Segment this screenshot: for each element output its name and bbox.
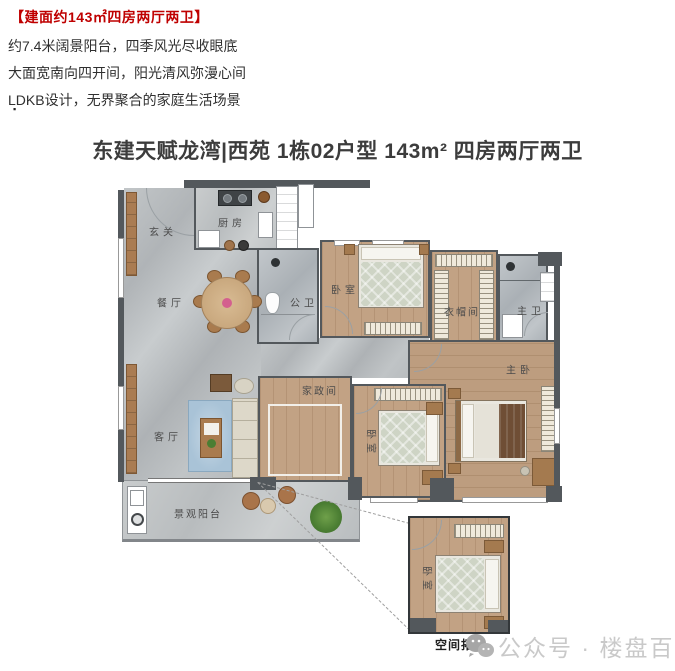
utility-window xyxy=(298,184,314,228)
room-label-bedroom3: 卧室 xyxy=(365,429,380,457)
stove xyxy=(218,190,252,206)
blanket xyxy=(499,404,525,458)
burner xyxy=(223,194,232,203)
bath-faucet xyxy=(506,262,515,271)
inset-expanded-bedroom: 卧室 xyxy=(408,516,510,634)
nightstand xyxy=(448,463,461,474)
room-label-master-bedroom: 主卧 xyxy=(506,362,534,377)
pillows xyxy=(426,414,438,462)
bar-stool xyxy=(224,240,235,251)
cooking-pot xyxy=(258,191,270,203)
washing-machine xyxy=(131,513,144,526)
marketing-line-3: LDKB设计，无界聚合的家庭生活场景 xyxy=(8,90,241,110)
bed xyxy=(358,244,424,308)
room-label-master-bath: 主卫 xyxy=(517,303,545,318)
headboard xyxy=(456,401,461,461)
bullet-mark: ▪ xyxy=(13,104,16,114)
blanket xyxy=(438,558,484,610)
wall-pillar xyxy=(546,486,562,502)
coffee-table xyxy=(200,418,222,458)
wall-pillar xyxy=(538,252,562,266)
desk xyxy=(426,402,443,415)
wardrobe xyxy=(435,254,493,267)
bedroom2-door-arc xyxy=(325,306,353,334)
bed xyxy=(378,410,440,466)
pillows xyxy=(361,247,421,260)
left-window xyxy=(118,386,124,430)
wardrobe xyxy=(364,322,422,335)
marketing-line-2: 大面宽南向四开间，阳光清风弥漫心间 xyxy=(8,63,246,83)
toilet xyxy=(265,292,280,314)
desk xyxy=(484,540,504,553)
tall-cabinet xyxy=(276,186,298,250)
flower-centerpiece xyxy=(222,298,232,308)
right-window xyxy=(554,408,560,444)
exterior-wall-left xyxy=(118,190,124,482)
wall-pillar xyxy=(430,478,454,502)
sheet xyxy=(475,404,499,458)
nightstand xyxy=(448,388,461,399)
shoe-cabinet xyxy=(126,192,137,276)
room-label-living: 客厅 xyxy=(154,429,182,444)
shower-tray xyxy=(502,314,523,338)
dining-table xyxy=(201,277,253,329)
tray xyxy=(204,423,219,435)
room-label-utility: 家政间 xyxy=(302,383,338,398)
room-label-inset-bedroom: 卧室 xyxy=(421,566,436,594)
dresser xyxy=(532,458,556,486)
room-label-bedroom2: 卧室 xyxy=(331,282,359,297)
headline-area-spec: 【建面约143㎡四房两厅两卫】 xyxy=(10,7,209,27)
page-title: 东建天赋龙湾|西苑 1栋02户型 143m² 四房两厅两卫 xyxy=(0,135,675,165)
armchair xyxy=(234,378,254,394)
nightstand xyxy=(419,244,429,255)
room-label-balcony: 景观阳台 xyxy=(174,506,222,521)
watermark-text: 公众号 · 楼盘百科 xyxy=(498,629,675,663)
wall-pillar xyxy=(348,477,362,500)
master-bedroom-door-arc xyxy=(414,344,442,372)
marketing-line-1: 约7.4米阔景阳台，四季风光尽收眼底 xyxy=(8,36,237,56)
nightstand xyxy=(344,244,355,255)
balcony-sink xyxy=(130,490,144,506)
fridge xyxy=(198,230,220,248)
wardrobe xyxy=(454,524,504,538)
room-label-entry: 玄关 xyxy=(149,224,177,239)
bottom-window xyxy=(462,497,548,503)
inset-door-arc xyxy=(412,520,442,550)
exterior-wall-right xyxy=(554,254,560,502)
room-label-closet: 衣帽间 xyxy=(444,304,480,319)
burner xyxy=(238,194,247,203)
master-bed xyxy=(455,400,527,462)
walkin-closet-room xyxy=(430,250,498,344)
balcony-table xyxy=(260,498,276,514)
bar-stool xyxy=(238,240,249,251)
floorplan-page: 【建面约143㎡四房两厅两卫】 约7.4米阔景阳台，四季风光尽收眼底 大面宽南向… xyxy=(0,0,675,671)
wardrobe xyxy=(479,270,494,340)
room-label-dining: 餐厅 xyxy=(157,295,185,310)
blanket xyxy=(381,413,425,463)
kitchen-sink xyxy=(258,212,273,238)
bed xyxy=(435,555,501,613)
wechat-icon xyxy=(464,631,496,661)
wardrobe xyxy=(374,388,442,401)
balcony-sliding-door xyxy=(148,478,254,483)
laundry-unit xyxy=(127,486,147,534)
console-cabinet xyxy=(210,374,232,392)
tv-cabinet xyxy=(126,364,137,474)
bath-faucet xyxy=(271,258,280,267)
hallway xyxy=(261,338,429,378)
guest-bath-door-arc xyxy=(289,314,315,340)
floorplan-main: 玄关 厨房 餐厅 公卫 卧室 衣帽间 主卫 主卧 客厅 家政间 卧室 景观阳台 xyxy=(118,178,562,552)
left-window xyxy=(118,238,124,298)
room-label-kitchen: 厨房 xyxy=(218,215,246,230)
storage-zone xyxy=(268,404,342,476)
room-label-guest-bath: 公卫 xyxy=(290,295,318,310)
balcony-chair xyxy=(242,492,260,510)
potted-plant xyxy=(310,501,342,533)
pillows xyxy=(485,559,499,609)
blanket xyxy=(361,262,421,306)
table-plant xyxy=(207,439,216,448)
stool xyxy=(520,466,530,476)
pillows xyxy=(462,404,474,458)
wall-pillar xyxy=(410,618,436,632)
sofa xyxy=(232,398,258,478)
